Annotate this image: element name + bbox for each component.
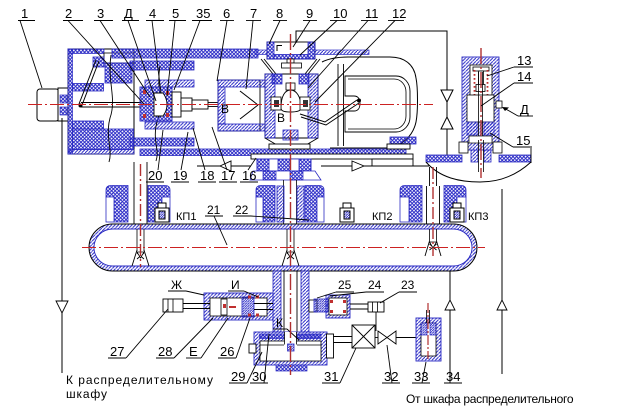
svg-text:К: К	[276, 316, 283, 330]
svg-text:Д: Д	[124, 6, 133, 21]
svg-text:22: 22	[235, 203, 249, 217]
svg-text:35: 35	[196, 6, 210, 21]
svg-text:9: 9	[306, 6, 313, 21]
svg-text:21: 21	[207, 203, 221, 217]
svg-text:10: 10	[333, 6, 347, 21]
svg-text:17: 17	[221, 168, 235, 183]
svg-text:От шкафа распределительного: От шкафа распределительного	[406, 392, 574, 406]
svg-text:6: 6	[223, 6, 230, 21]
svg-text:3: 3	[97, 6, 104, 21]
svg-text:КП3: КП3	[468, 211, 488, 223]
svg-text:14: 14	[517, 69, 531, 84]
svg-text:11: 11	[365, 6, 379, 21]
svg-text:18: 18	[200, 168, 214, 183]
svg-text:33: 33	[414, 369, 428, 384]
svg-text:26: 26	[220, 344, 234, 359]
svg-text:12: 12	[392, 6, 406, 21]
svg-text:1: 1	[21, 6, 28, 21]
svg-text:16: 16	[242, 168, 256, 183]
svg-text:13: 13	[517, 53, 531, 68]
svg-text:7: 7	[250, 6, 257, 21]
svg-text:Д: Д	[520, 102, 529, 117]
svg-text:25: 25	[338, 278, 352, 292]
svg-text:19: 19	[173, 168, 187, 183]
svg-text:31: 31	[324, 369, 338, 384]
svg-text:34: 34	[446, 369, 460, 384]
svg-text:28: 28	[158, 344, 172, 359]
svg-text:2: 2	[65, 6, 72, 21]
svg-text:Ж: Ж	[171, 278, 182, 292]
svg-text:К распределительному: К распределительному	[66, 373, 214, 387]
svg-text:И: И	[231, 278, 240, 292]
svg-text:шкафу: шкафу	[66, 387, 108, 401]
svg-text:КП2: КП2	[372, 211, 392, 223]
svg-text:15: 15	[516, 133, 530, 148]
svg-text:КП1: КП1	[176, 211, 196, 223]
svg-text:29: 29	[231, 369, 245, 384]
svg-text:23: 23	[401, 278, 415, 292]
svg-text:24: 24	[368, 278, 382, 292]
svg-text:4: 4	[149, 6, 156, 21]
svg-text:Е: Е	[189, 344, 198, 359]
svg-text:5: 5	[172, 6, 179, 21]
svg-text:20: 20	[148, 168, 162, 183]
svg-text:27: 27	[110, 344, 124, 359]
svg-text:В: В	[277, 111, 285, 125]
svg-text:8: 8	[276, 6, 283, 21]
